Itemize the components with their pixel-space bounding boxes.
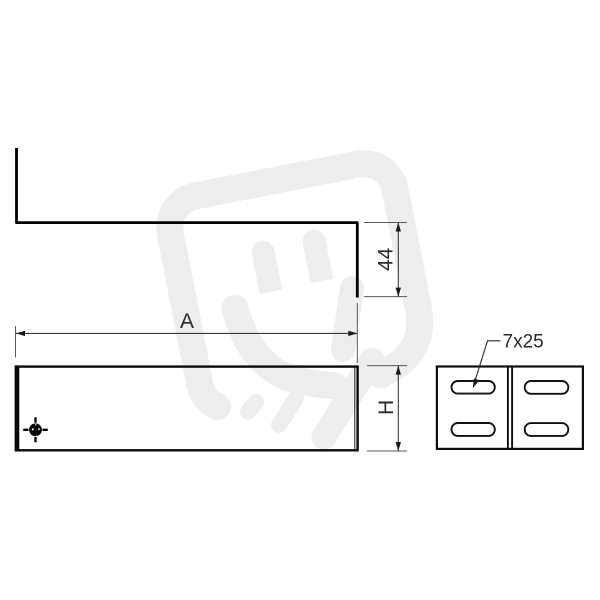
svg-text:A: A — [180, 310, 194, 333]
svg-text:7x25: 7x25 — [503, 332, 544, 353]
svg-text:44: 44 — [375, 247, 398, 271]
svg-text:H: H — [375, 400, 398, 415]
